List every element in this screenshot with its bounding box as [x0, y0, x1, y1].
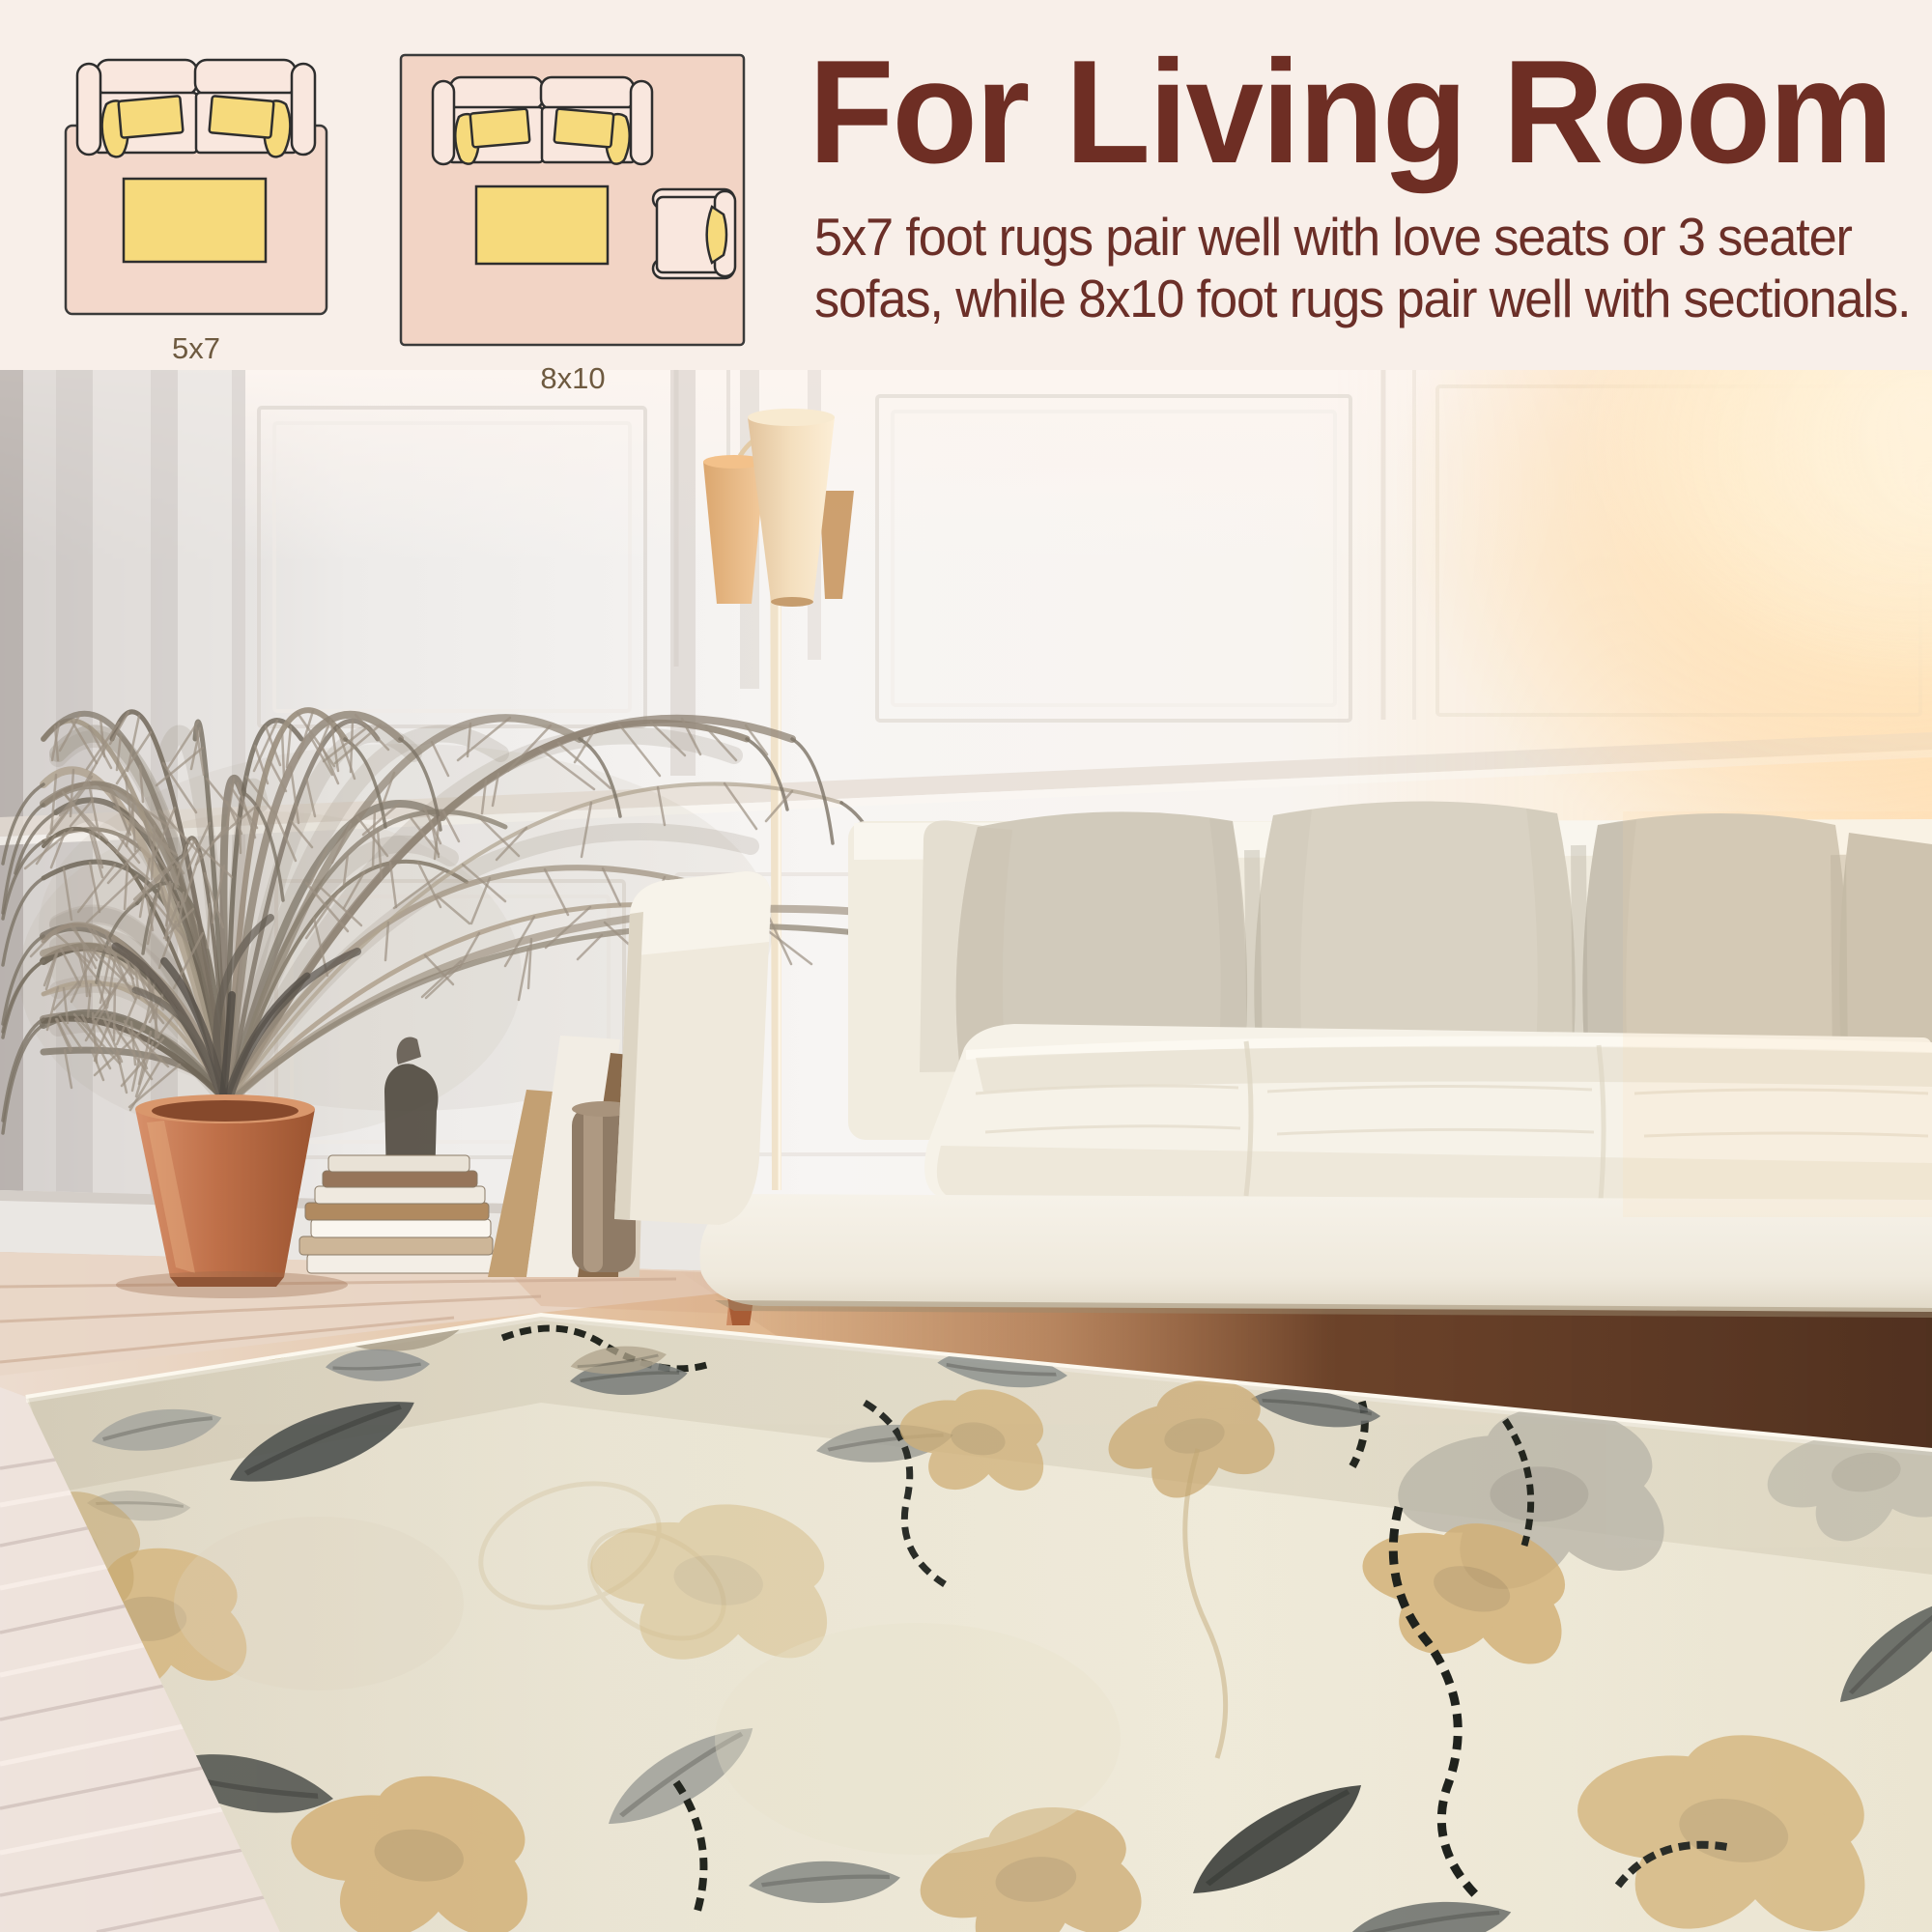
svg-text:5x7: 5x7	[172, 331, 220, 365]
svg-text:8x10: 8x10	[540, 361, 605, 395]
